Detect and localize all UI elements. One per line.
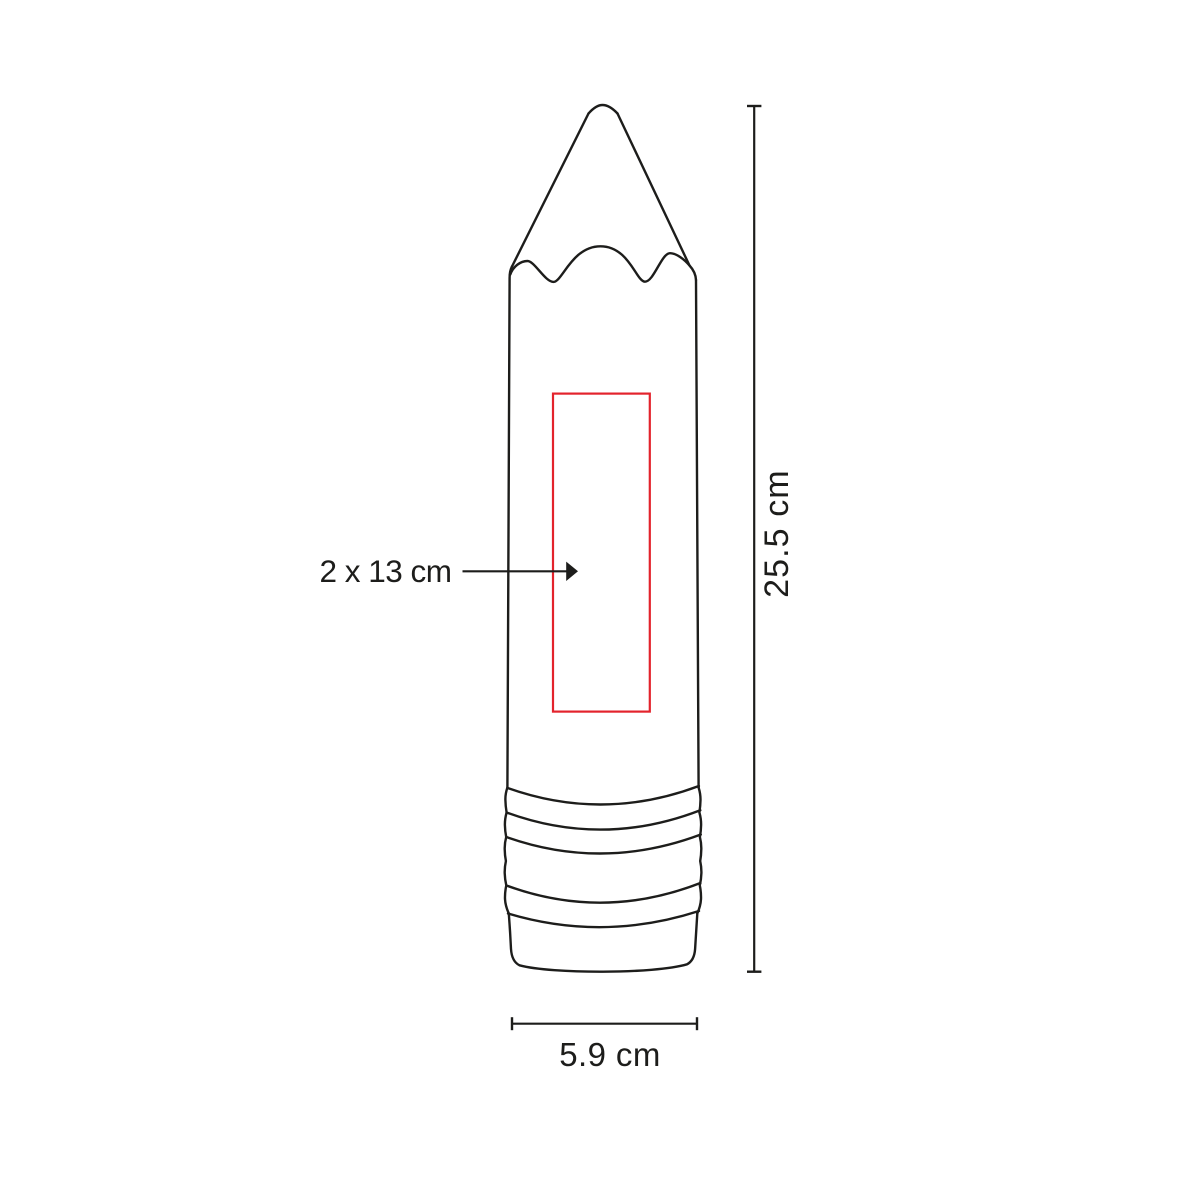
svg-text:5.9 cm: 5.9 cm [559,1036,660,1073]
svg-text:25.5 cm: 25.5 cm [758,469,796,598]
svg-text:2 x 13 cm: 2 x 13 cm [319,553,451,589]
